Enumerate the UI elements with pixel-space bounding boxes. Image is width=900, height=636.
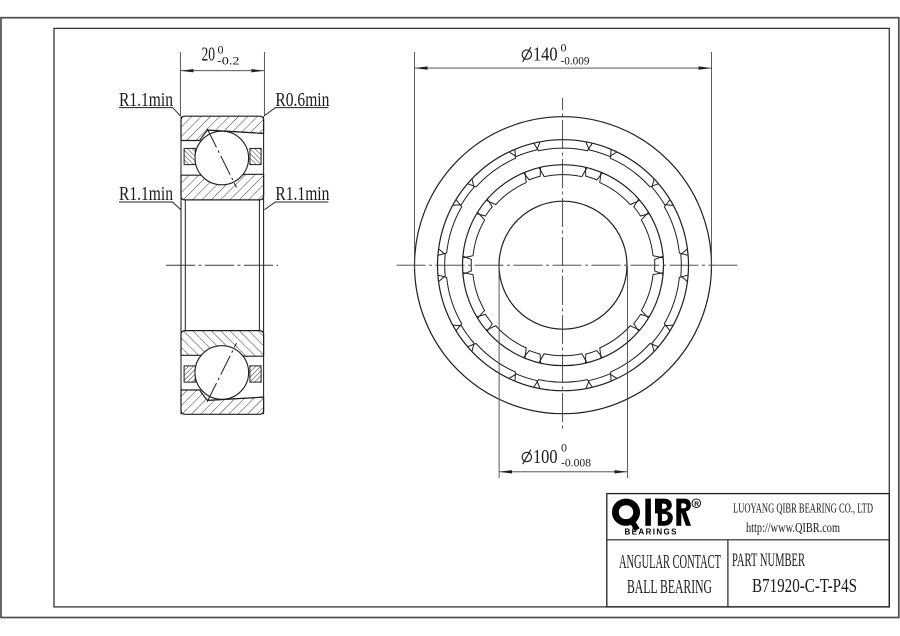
svg-text:ANGULAR CONTACT: ANGULAR CONTACT: [619, 551, 721, 573]
svg-text:B71920-C-T-P4S: B71920-C-T-P4S: [752, 575, 857, 597]
svg-text:0: 0: [561, 441, 567, 455]
svg-text:140: 140: [533, 44, 558, 66]
svg-text:BALL BEARING: BALL BEARING: [627, 576, 712, 598]
svg-text:-0.008: -0.008: [561, 456, 591, 470]
svg-text:-0.2: -0.2: [217, 53, 240, 67]
svg-text:20: 20: [202, 44, 216, 66]
svg-text:http://www.QIBR.com: http://www.QIBR.com: [746, 520, 840, 535]
svg-text:BEARINGS: BEARINGS: [625, 527, 678, 536]
svg-text:100: 100: [533, 446, 558, 468]
svg-text:PART NUMBER: PART NUMBER: [732, 550, 805, 571]
svg-text:0: 0: [561, 41, 567, 55]
svg-text:R: R: [694, 501, 699, 508]
svg-text:-0.009: -0.009: [561, 54, 590, 68]
svg-text:LUOYANG QIBR BEARING CO., LTD: LUOYANG QIBR BEARING CO., LTD: [733, 501, 873, 516]
